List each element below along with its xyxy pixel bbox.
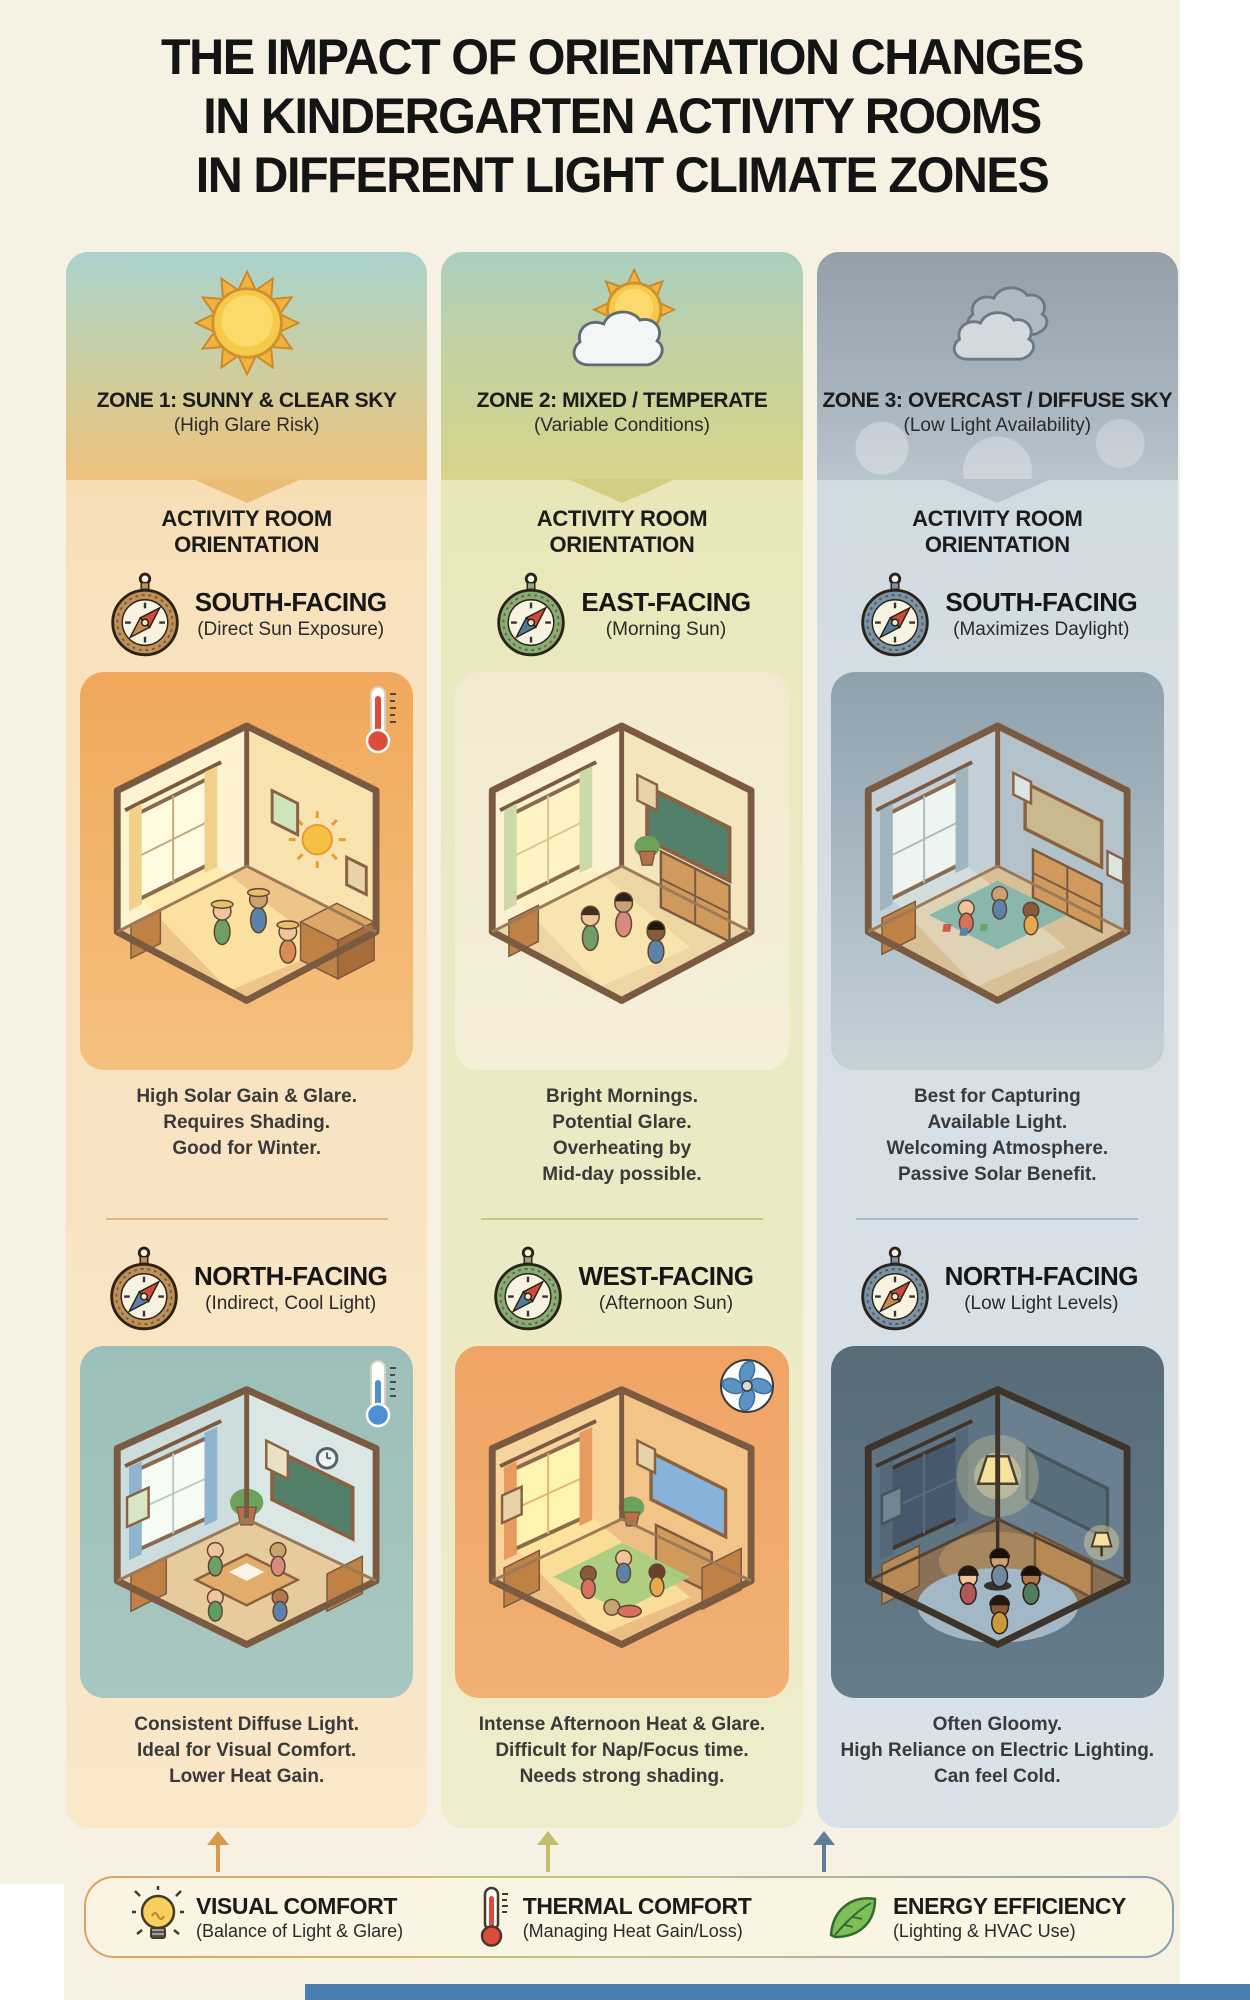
room-illustration-south-overcast [831,672,1164,1070]
fan-icon [719,1358,775,1414]
orientation-heading: EAST-FACING [581,587,750,618]
bottom-blue-bar [305,1984,1250,2000]
compass-icon [490,1242,566,1334]
orientation-subheading: (Indirect, Cool Light) [194,1293,387,1315]
zone3-orientation1-header: SOUTH-FACING (Maximizes Daylight) [817,566,1178,662]
legend-arrow-zone3 [822,1844,826,1872]
zone1-divider [106,1218,388,1220]
zone3-sky-header: ZONE 3: OVERCAST / DIFFUSE SKY (Low Ligh… [817,252,1178,480]
legend-bar: VISUAL COMFORT (Balance of Light & Glare… [84,1876,1174,1958]
infographic-canvas: THE IMPACT OF ORIENTATION CHANGES IN KIN… [0,0,1250,2000]
room-card-south-sunny [80,672,413,1070]
zone2-orientation1-header: EAST-FACING (Morning Sun) [441,566,802,662]
zone1-panel: ZONE 1: SUNNY & CLEAR SKY (High Glare Ri… [66,252,427,1828]
zone3-subtitle: (Low Light Availability) [817,415,1178,437]
orientation-subheading: (Maximizes Daylight) [945,619,1137,641]
orientation-heading: NORTH-FACING [945,1261,1138,1292]
description-south-overcast: Best for Capturing Available Light. Welc… [817,1084,1178,1196]
table-lamp [1084,1525,1119,1560]
zone2-sky-header: ZONE 2: MIXED / TEMPERATE (Variable Cond… [441,252,802,480]
compass-icon [493,568,569,660]
zone3-orientation2-header: NORTH-FACING (Low Light Levels) [817,1240,1178,1336]
legend-arrow-zone2 [546,1844,550,1872]
page-margin-bottom-left [0,1884,64,2000]
page-title: THE IMPACT OF ORIENTATION CHANGES IN KIN… [83,28,1162,205]
thermometer-cold-icon [359,1358,399,1430]
zone3-panel: ZONE 3: OVERCAST / DIFFUSE SKY (Low Ligh… [817,252,1178,1828]
sun-icon [190,264,304,382]
zone1-subtitle: (High Glare Risk) [66,415,427,437]
legend-item-visual-comfort: VISUAL COMFORT (Balance of Light & Glare… [132,1886,403,1948]
zone3-title: ZONE 3: OVERCAST / DIFFUSE SKY [817,389,1178,413]
zone-columns: ZONE 1: SUNNY & CLEAR SKY (High Glare Ri… [66,252,1178,1828]
zone1-orientation2-header: NORTH-FACING (Indirect, Cool Light) [66,1240,427,1336]
room-illustration-east [455,672,788,1070]
title-line-1: THE IMPACT OF ORIENTATION CHANGES [83,28,1162,87]
compass-icon [857,1242,933,1334]
zone3-divider [856,1218,1138,1220]
title-line-2: IN KINDERGARTEN ACTIVITY ROOMS [83,87,1162,146]
leaf-icon [823,1889,881,1945]
thermometer-hot-icon [359,684,399,756]
room-card-east [455,672,788,1070]
description-north-cool: Consistent Diffuse Light. Ideal for Visu… [66,1712,427,1828]
orientation-subheading: (Afternoon Sun) [578,1293,753,1315]
zone2-title: ZONE 2: MIXED / TEMPERATE [441,389,802,413]
thermometer-icon [475,1886,511,1948]
room-card-north-cool [80,1346,413,1698]
description-north-gloomy: Often Gloomy. High Reliance on Electric … [817,1712,1178,1828]
zone2-panel: ZONE 2: MIXED / TEMPERATE (Variable Cond… [441,252,802,1828]
orientation-subheading: (Morning Sun) [581,619,750,641]
zone1-section-header: ACTIVITY ROOM ORIENTATION [66,506,427,558]
orientation-heading: SOUTH-FACING [945,587,1137,618]
orientation-heading: NORTH-FACING [194,1261,387,1292]
page-margin-right [1180,0,1250,2000]
lightbulb-icon [132,1886,184,1948]
compass-icon [857,568,933,660]
room-card-north-gloomy [831,1346,1164,1698]
room-card-west [455,1346,788,1698]
orientation-subheading: (Direct Sun Exposure) [195,619,387,641]
zone3-section-header: ACTIVITY ROOM ORIENTATION [817,506,1178,558]
sun-cloud-icon [560,264,684,382]
legend-item-energy-efficiency: ENERGY EFFICIENCY (Lighting & HVAC Use) [823,1889,1126,1945]
legend-item-thermal-comfort: THERMAL COMFORT (Managing Heat Gain/Loss… [475,1886,752,1948]
clouds-icon [931,264,1064,382]
zone2-subtitle: (Variable Conditions) [441,415,802,437]
title-line-3: IN DIFFERENT LIGHT CLIMATE ZONES [83,146,1162,205]
description-south-sunny: High Solar Gain & Glare. Requires Shadin… [66,1084,427,1196]
zone1-chevron [193,479,301,503]
room-card-south-overcast [831,672,1164,1070]
zone1-sky-header: ZONE 1: SUNNY & CLEAR SKY (High Glare Ri… [66,252,427,480]
zone1-title: ZONE 1: SUNNY & CLEAR SKY [66,389,427,413]
compass-icon [107,568,183,660]
zone2-divider [481,1218,763,1220]
zone2-section-header: ACTIVITY ROOM ORIENTATION [441,506,802,558]
zone3-chevron [943,479,1051,503]
orientation-subheading: (Low Light Levels) [945,1293,1138,1315]
compass-icon [106,1242,182,1334]
zone2-orientation2-header: WEST-FACING (Afternoon Sun) [441,1240,802,1336]
orientation-heading: SOUTH-FACING [195,587,387,618]
zone1-orientation1-header: SOUTH-FACING (Direct Sun Exposure) [66,566,427,662]
legend-arrow-zone1 [216,1844,220,1872]
zone2-chevron [568,479,676,503]
description-east: Bright Mornings. Potential Glare. Overhe… [441,1084,802,1196]
description-west: Intense Afternoon Heat & Glare. Difficul… [441,1712,802,1828]
orientation-heading: WEST-FACING [578,1261,753,1292]
room-illustration-north-gloomy [831,1346,1164,1698]
